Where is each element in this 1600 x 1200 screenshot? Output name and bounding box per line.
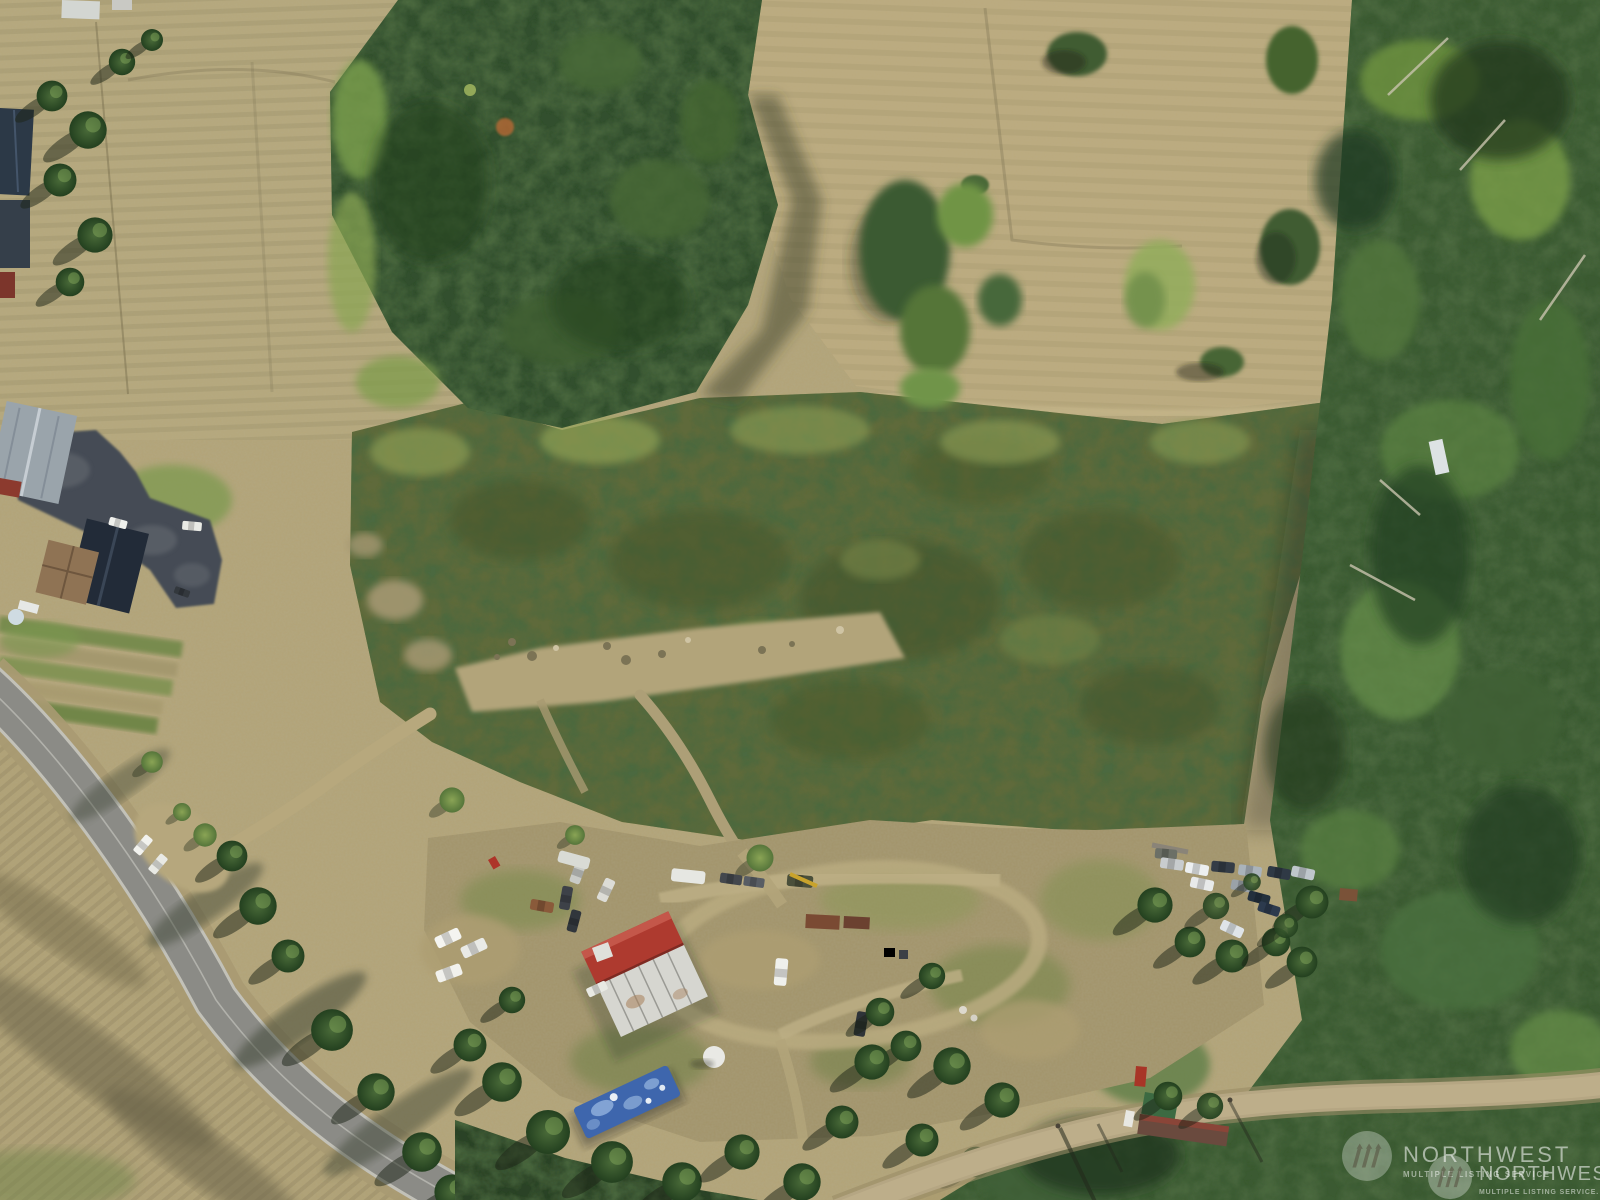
rv-roof: [112, 0, 132, 10]
utility-pole: [1228, 1098, 1233, 1103]
tank-shadow: [690, 1059, 714, 1069]
wood-pile: [1339, 888, 1358, 902]
pool: [8, 609, 24, 625]
junk-car: [1211, 861, 1235, 874]
utility-pole: [1056, 1124, 1061, 1129]
white-box: [884, 948, 895, 957]
container: [805, 914, 840, 930]
aerial-photo-scene: [0, 0, 1600, 1200]
forest-top-center: [328, 0, 822, 428]
car: [182, 521, 202, 532]
white-van: [774, 958, 789, 986]
debris: [959, 1006, 967, 1014]
rv-roof: [61, 0, 100, 19]
debris: [971, 1015, 978, 1022]
red-truck: [1134, 1066, 1147, 1087]
dark-box: [899, 950, 908, 959]
container: [843, 916, 870, 929]
aerial-photo: NORTHWEST MULTIPLE LISTING SERVICE NORTH…: [0, 0, 1600, 1200]
